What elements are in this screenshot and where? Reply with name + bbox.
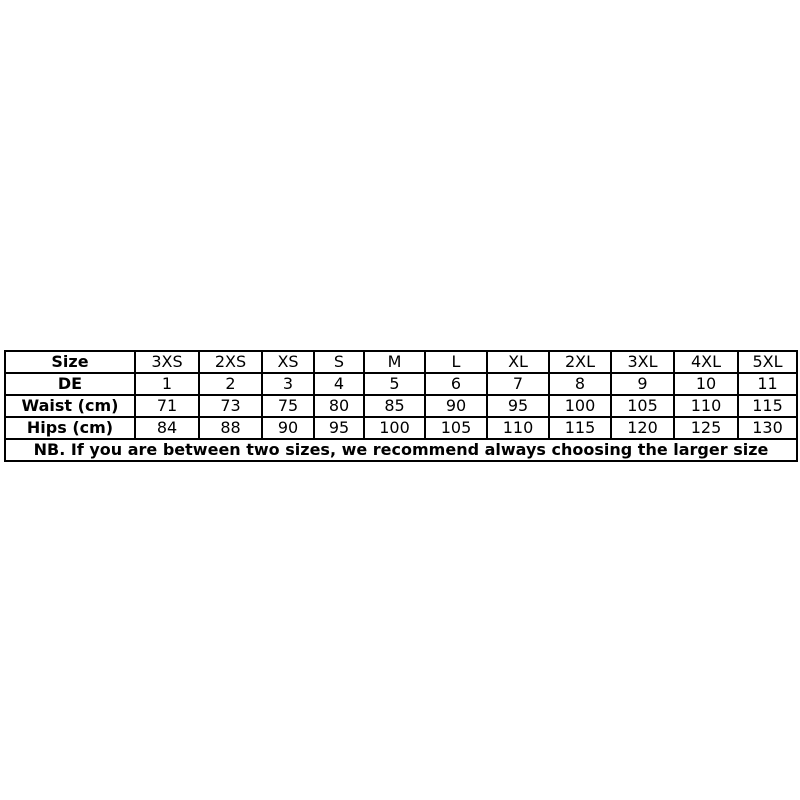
table-cell: 125 [674,417,738,439]
table-cell: 90 [425,395,487,417]
table-cell: 115 [549,417,611,439]
table-cell: 3XS [135,351,199,373]
table-cell: 9 [611,373,674,395]
size-chart-table: Size3XS2XSXSSMLXL2XL3XL4XL5XLDE123456789… [4,350,798,462]
table-cell: 10 [674,373,738,395]
size-chart-body: Size3XS2XSXSSMLXL2XL3XL4XL5XLDE123456789… [5,351,797,439]
table-cell: 95 [487,395,549,417]
table-cell: 100 [549,395,611,417]
table-cell: M [364,351,425,373]
table-row: Hips (cm)84889095100105110115120125130 [5,417,797,439]
table-cell: 2XS [199,351,262,373]
table-cell: 8 [549,373,611,395]
table-cell: 84 [135,417,199,439]
table-cell: XL [487,351,549,373]
table-cell: 105 [425,417,487,439]
table-cell: 115 [738,395,797,417]
row-label: Size [5,351,135,373]
table-cell: 11 [738,373,797,395]
table-row: DE1234567891011 [5,373,797,395]
table-cell: 6 [425,373,487,395]
table-row: Waist (cm)71737580859095100105110115 [5,395,797,417]
table-cell: 85 [364,395,425,417]
table-cell: 5XL [738,351,797,373]
table-cell: 71 [135,395,199,417]
table-cell: 90 [262,417,314,439]
table-cell: 95 [314,417,364,439]
table-cell: 130 [738,417,797,439]
table-cell: 2XL [549,351,611,373]
table-cell: 5 [364,373,425,395]
table-cell: S [314,351,364,373]
table-cell: 3XL [611,351,674,373]
note-row: NB. If you are between two sizes, we rec… [5,439,797,461]
table-cell: 2 [199,373,262,395]
table-row: Size3XS2XSXSSMLXL2XL3XL4XL5XL [5,351,797,373]
table-cell: L [425,351,487,373]
table-cell: 110 [674,395,738,417]
table-cell: 105 [611,395,674,417]
row-label: Hips (cm) [5,417,135,439]
table-cell: 100 [364,417,425,439]
table-cell: 73 [199,395,262,417]
table-cell: 88 [199,417,262,439]
table-cell: 4XL [674,351,738,373]
table-cell: 120 [611,417,674,439]
table-cell: 7 [487,373,549,395]
table-cell: 110 [487,417,549,439]
table-cell: 75 [262,395,314,417]
row-label: Waist (cm) [5,395,135,417]
row-label: DE [5,373,135,395]
table-cell: 4 [314,373,364,395]
table-cell: 1 [135,373,199,395]
table-cell: XS [262,351,314,373]
size-note: NB. If you are between two sizes, we rec… [5,439,797,461]
table-cell: 80 [314,395,364,417]
table-cell: 3 [262,373,314,395]
